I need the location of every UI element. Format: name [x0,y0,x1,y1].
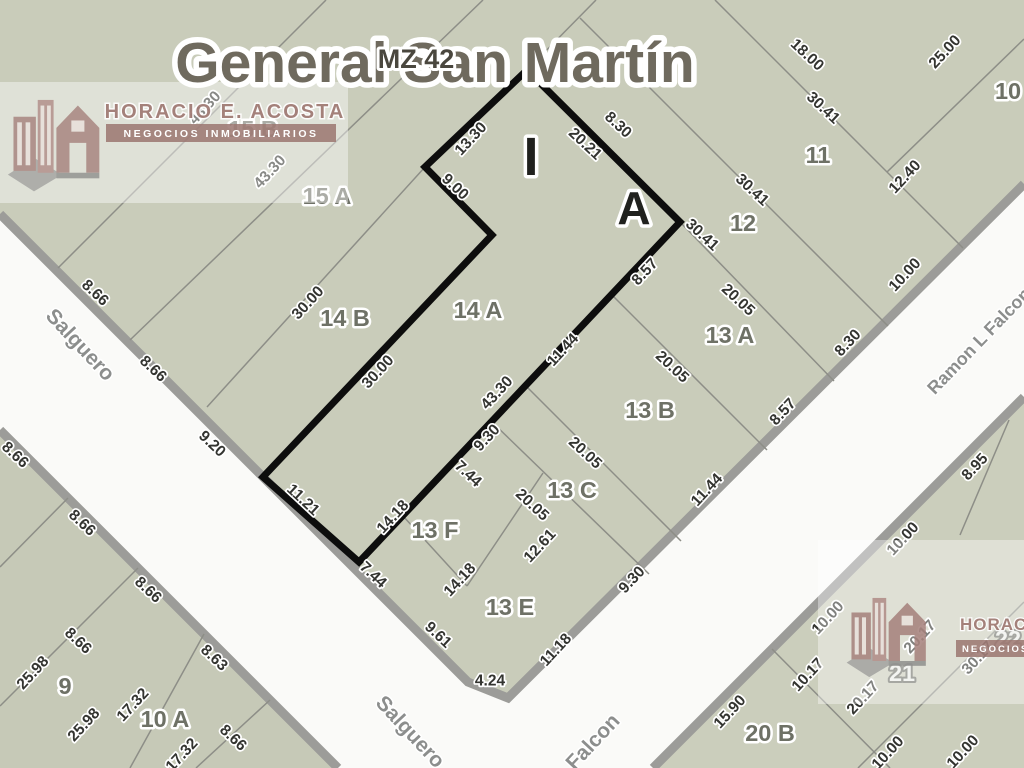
lot-label: 13 F [411,517,458,543]
lot-label: 13 E [486,594,534,620]
lot-label: 12 [730,210,756,236]
lot-label: 14 B [320,305,370,331]
lot-label: 13 A [706,322,755,348]
plat-map-page: 43.3043.308.668.669.2030.0030.0013.309.0… [0,0,1024,768]
highlight-parcel-letter: I [523,127,538,187]
lot-label: 11 [806,142,831,168]
lot-label: 9 [58,673,71,699]
highlight-parcel-letter: A [617,182,650,234]
lot-label: 14 A [454,297,503,323]
watermark-tagline: NEGOCIOS INMOBILIARIOS [123,128,318,140]
lot-label: 10 A [141,706,190,732]
lot-label: 20 B [745,720,795,746]
watermark-top-left: HORACIO E. ACOSTA NEGOCIOS INMOBILIARIOS [0,82,348,203]
cadastral-map: 43.3043.308.668.669.2030.0030.0013.309.0… [0,0,1024,768]
watermark-name: HORACIO E. ACOSTA [105,101,346,123]
lot-label: 13 C [547,477,597,503]
dimension-label: 4.24 [475,673,506,690]
watermark-tagline: NEGOCIOS INMOBILIARIOS [962,644,1024,655]
lot-label: 13 B [625,397,675,423]
watermark-name: HORACIO E. ACOSTA [960,615,1024,634]
watermark-bottom-right: HORACIO E. ACOSTA NEGOCIOS INMOBILIARIOS [818,540,1024,704]
lot-label: 10 [995,78,1021,104]
block-code-label: MZ 42 [378,44,455,74]
